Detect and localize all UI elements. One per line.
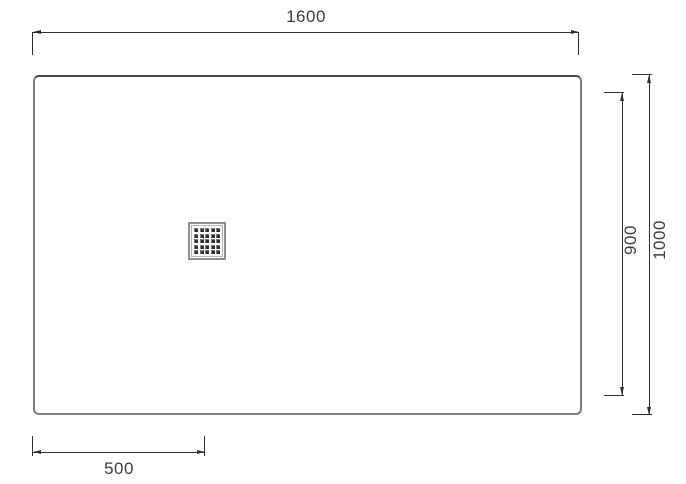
drain-hole	[200, 250, 204, 254]
drain-hole	[211, 250, 215, 254]
drain-hole	[200, 245, 204, 249]
shower-tray-outline	[33, 75, 582, 415]
drain-hole	[194, 228, 198, 232]
dim-top-width-ext-right	[578, 32, 579, 55]
drain-hole	[205, 250, 209, 254]
drain-hole	[216, 239, 220, 243]
dim-outer-height-ext-bottom	[632, 414, 652, 415]
drain-hole	[200, 239, 204, 243]
drain-hole	[211, 228, 215, 232]
drain-hole	[216, 234, 220, 238]
drain-hole	[211, 245, 215, 249]
drain-hole	[205, 234, 209, 238]
dim-top-width-label: 1600	[33, 7, 579, 27]
drain-hole	[216, 245, 220, 249]
drain-hole	[200, 234, 204, 238]
drain-hole	[200, 228, 204, 232]
dim-inner-height-ext-top	[604, 92, 624, 93]
drain-hole	[216, 250, 220, 254]
drain-grate-icon	[188, 222, 226, 260]
dim-inner-height-arrow-top	[620, 93, 624, 101]
dim-offset-arrow-left	[33, 450, 41, 454]
dim-top-width-ext-left	[32, 32, 33, 55]
dim-outer-height-label: 1000	[650, 210, 670, 270]
dim-top-width-arrow-left	[33, 30, 41, 34]
dim-outer-height-arrow-top	[647, 75, 651, 83]
drain-hole	[211, 234, 215, 238]
drain-hole	[194, 234, 198, 238]
dim-outer-height-ext-top	[632, 74, 652, 75]
drain-hole	[194, 250, 198, 254]
drain-hole	[211, 239, 215, 243]
drain-hole	[194, 239, 198, 243]
technical-drawing-canvas: 1600 900 1000 500	[0, 0, 686, 484]
dim-inner-height-label: 900	[621, 210, 641, 270]
drain-hole	[194, 245, 198, 249]
drain-hole	[205, 228, 209, 232]
dim-offset-line	[33, 452, 205, 453]
dim-offset-label: 500	[33, 459, 205, 479]
drain-hole	[216, 228, 220, 232]
drain-grate-grid	[194, 228, 220, 254]
dim-inner-height-arrow-bottom	[620, 387, 624, 395]
dim-offset-arrow-right	[197, 450, 205, 454]
drain-hole	[205, 239, 209, 243]
dim-top-width-line	[33, 32, 579, 33]
drain-hole	[205, 245, 209, 249]
drain-grate-inner-frame	[191, 225, 223, 257]
dim-inner-height-ext-bottom	[604, 395, 624, 396]
